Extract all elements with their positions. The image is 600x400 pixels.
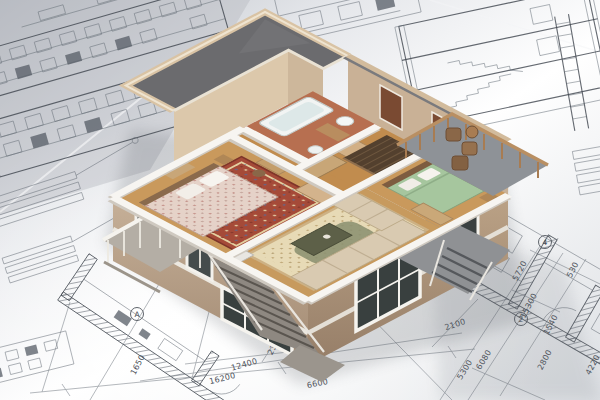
balcony-table	[466, 126, 478, 138]
svg-text:A: A	[134, 310, 140, 319]
scene-canvas: 16200 12400 6600 2300 2100 5300 6080 572…	[0, 0, 600, 400]
wicker-chair	[446, 128, 461, 141]
architectural-scene: 16200 12400 6600 2300 2100 5300 6080 572…	[0, 0, 600, 400]
wicker-sofa	[452, 156, 468, 170]
wicker-chair	[462, 142, 477, 155]
svg-text:4: 4	[543, 238, 548, 247]
